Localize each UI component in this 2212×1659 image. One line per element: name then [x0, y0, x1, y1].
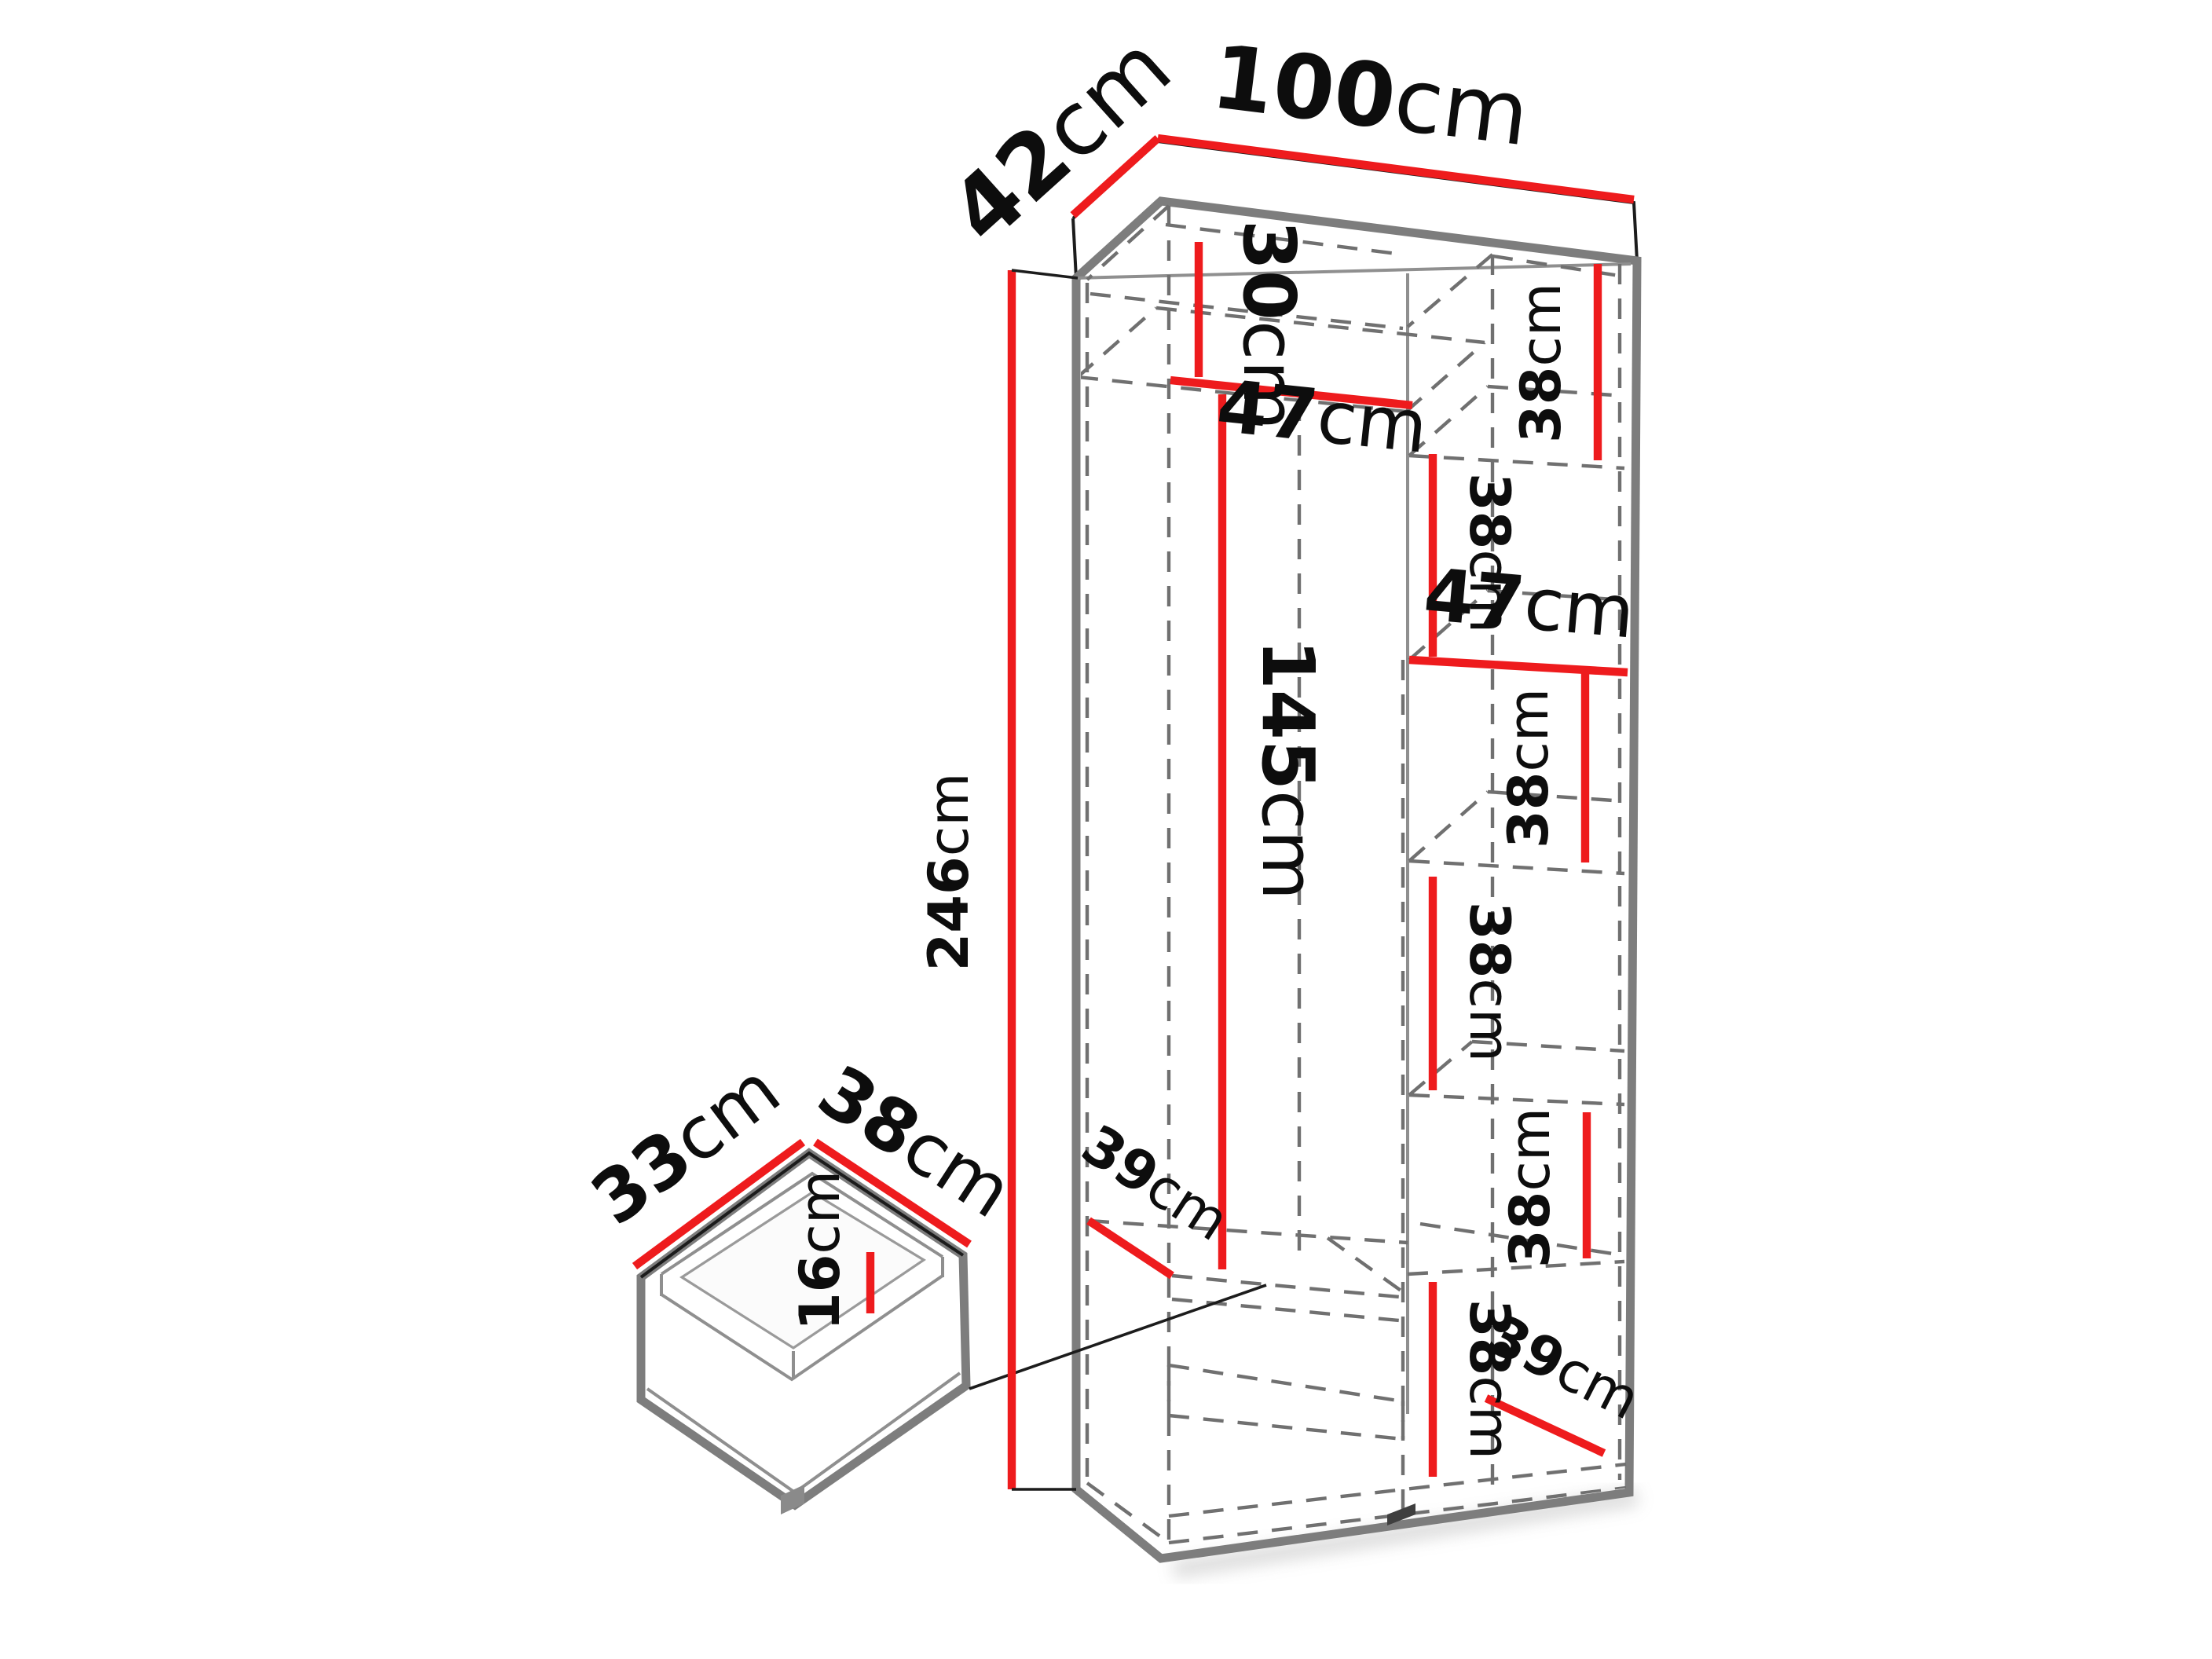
drawer-slot-edge — [1169, 1415, 1403, 1439]
label-right-width: 47cm — [1420, 553, 1638, 655]
label-drawer-height: 16cm — [788, 1170, 852, 1331]
shelf-edge — [1409, 861, 1624, 873]
shelf-edge — [1172, 1299, 1408, 1321]
label-overall-height: 246cm — [917, 773, 981, 972]
diagram-page: 100cm 42cm 246cm 30cm 47cm 145cm 39cm 38… — [0, 0, 2212, 1659]
drawer-slot-edge — [1169, 1365, 1403, 1401]
wardrobe-dimension-diagram: 100cm 42cm 246cm 30cm 47cm 145cm 39cm 38… — [0, 0, 2212, 1659]
label-drawer-depth: 33cm — [577, 1047, 796, 1241]
shelf-edge — [1409, 792, 1488, 861]
shelf-edge — [1328, 1238, 1411, 1298]
carcass-front-top-edge — [1076, 264, 1631, 278]
dim-line-left-shelf-depth — [1089, 1221, 1172, 1276]
dim-line-right-width — [1409, 660, 1628, 672]
shelf-edge — [1156, 308, 1485, 342]
label-shelf1-height: 38cm — [1509, 283, 1573, 443]
shelf-edge — [1078, 308, 1156, 377]
label-left-shelf-depth: 39cm — [1071, 1112, 1240, 1254]
dashed-edge — [1408, 255, 1492, 327]
label-overall-width: 100cm — [1207, 26, 1534, 166]
dim-tick — [1012, 270, 1078, 278]
shelf-edge — [1409, 1095, 1624, 1104]
label-left-width: 47cm — [1213, 364, 1431, 469]
shelf-edge — [1409, 456, 1624, 468]
shelf-edge — [1172, 1276, 1408, 1298]
shelf-edge — [1089, 1221, 1408, 1243]
label-shelf3-height: 38cm — [1496, 688, 1561, 848]
label-shelf5-height: 38cm — [1498, 1108, 1562, 1268]
label-hanging-height: 145cm — [1246, 639, 1330, 900]
label-shelf4-height: 38cm — [1457, 902, 1522, 1062]
